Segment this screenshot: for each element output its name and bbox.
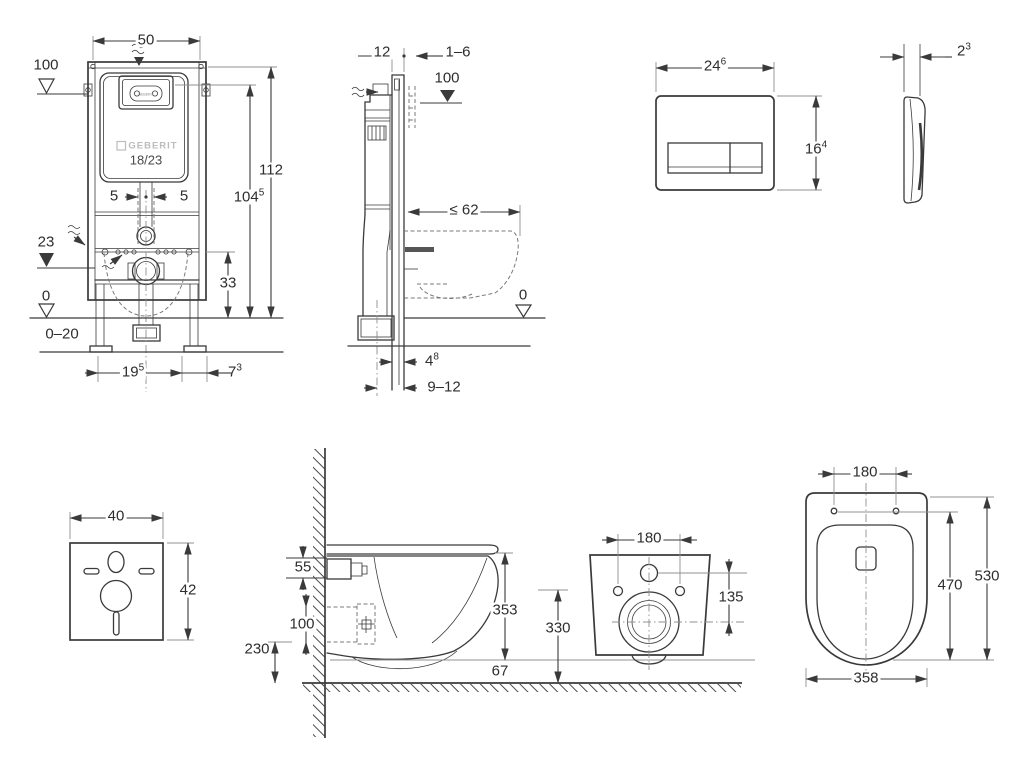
bowl-opening — [817, 525, 913, 659]
pan-top-outline — [806, 493, 927, 665]
wc-pan-top-view — [806, 467, 994, 687]
dim-plate-thickness: 23 — [957, 44, 971, 59]
wc-pan-side-view — [268, 448, 755, 738]
wall-hatch — [313, 449, 325, 737]
dim-zero-level: 0 — [42, 289, 50, 304]
dim-height-above-floor: 330 — [543, 621, 572, 636]
floor-hatch — [303, 684, 741, 692]
flush-plate-side-view — [880, 44, 952, 203]
dim-frame-depth: 12 — [372, 45, 393, 60]
sound-insulation-mat-view — [70, 512, 194, 640]
mat-top-cutout — [108, 552, 124, 573]
mounting-bracket — [327, 559, 351, 579]
brand-watermark: GEBERIT — [128, 141, 177, 151]
cistern-side-profile — [365, 84, 392, 250]
dim-side-zero-level: 0 — [519, 288, 527, 303]
dim-hole-spacing-rear: 180 — [634, 531, 663, 546]
dim-plate-width: 246 — [702, 59, 728, 74]
model-number: 18/23 — [130, 154, 163, 167]
mat-outline — [70, 543, 163, 640]
dim-pan-height: 353 — [490, 603, 519, 618]
dim-inlet-zone: 100 — [287, 617, 316, 632]
drawing-linework: GEBERIT — [0, 0, 1024, 758]
dim-max-depth: ≤ 62 — [447, 203, 480, 218]
dim-hole-spacing-top: 180 — [850, 465, 879, 480]
dim-supply-level: 100 — [33, 58, 58, 73]
dim-floor-clearance: 67 — [492, 664, 509, 679]
flush-buttons — [668, 143, 762, 173]
zero-level-icon — [39, 304, 54, 317]
dim-hole-to-outlet: 135 — [716, 590, 745, 605]
drain-socket — [358, 316, 394, 340]
pan-side-profile — [327, 556, 498, 659]
dim-fix-left: 5 — [110, 189, 118, 204]
frame-side-view — [348, 48, 545, 396]
dim-total-height: 112 — [257, 163, 285, 178]
watermark-square-icon — [117, 142, 126, 151]
level-marker-filled-icon — [440, 90, 455, 102]
dim-side-supply-level: 100 — [434, 71, 459, 86]
dim-bracket-height: 55 — [295, 560, 312, 575]
dim-frame-width: 50 — [136, 33, 157, 48]
dim-foot-offset: 195 — [120, 365, 146, 380]
dim-pipe-offset: 48 — [425, 354, 439, 369]
fixing-hole-right — [676, 587, 685, 596]
dim-mat-width: 40 — [106, 509, 127, 524]
technical-drawing-canvas: GEBERIT — [0, 0, 1024, 758]
dim-total-depth: 530 — [972, 569, 1001, 584]
dim-mat-height: 42 — [178, 583, 199, 598]
level-marker-filled-icon — [39, 253, 54, 267]
zero-level-icon — [516, 305, 531, 317]
dim-outlet-range: 9–12 — [427, 380, 460, 395]
dim-outlet-height: 33 — [218, 276, 239, 291]
logo-plate-text: GEBERIT — [138, 93, 154, 97]
dim-fix-right: 5 — [180, 189, 188, 204]
pan-mounting-rod — [405, 247, 434, 252]
dim-pan-width: 358 — [851, 671, 880, 686]
foot-left — [90, 346, 112, 352]
dim-adjust-range: 0–20 — [45, 327, 78, 342]
dim-hole-to-front: 470 — [935, 578, 964, 593]
fixing-hole-left — [614, 587, 623, 596]
dim-plate-height: 164 — [803, 142, 829, 157]
wc-pan-rear-view — [538, 534, 747, 683]
flush-plate-front-view — [656, 62, 822, 190]
foot-right — [184, 346, 206, 352]
level-marker-open-icon — [39, 79, 54, 93]
dim-outlet-level: 23 — [38, 235, 55, 250]
dim-outlet-to-floor: 230 — [244, 642, 269, 657]
dim-plate-center: 1045 — [232, 190, 267, 205]
seat-lid — [327, 545, 498, 554]
dim-finish-thickness: 1–6 — [445, 45, 470, 60]
dim-foot-width: 73 — [228, 365, 242, 380]
mat-center-cutout — [101, 581, 132, 612]
